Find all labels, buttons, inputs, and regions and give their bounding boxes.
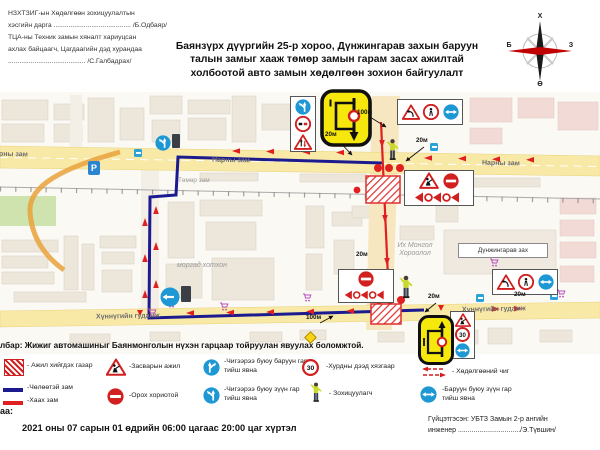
speed-limit-sign-icon: 30 <box>455 327 470 342</box>
mandatory-direction-sign-icon <box>443 104 459 120</box>
market-cart-icon <box>219 302 229 311</box>
distance-label: 20м <box>325 131 337 138</box>
mandatory-direction-sign-icon <box>155 135 171 151</box>
railway-label: Төмөр зам <box>178 177 210 184</box>
legend-label-speed-limit: -Хурдны дээд хязгаар <box>326 363 395 372</box>
traffic-officer-icon <box>310 381 322 407</box>
detour-chevron-icon <box>343 289 389 301</box>
no-entry-sign-icon <box>358 271 374 287</box>
work-area-swatch <box>4 359 24 376</box>
svg-text:30: 30 <box>307 365 315 372</box>
mandatory-direction-sign-icon <box>455 343 470 358</box>
street-label-narny-mid: Нарны зам <box>212 157 250 165</box>
no-pedestrian-sign-icon <box>423 104 439 120</box>
legend-label-right-or-left: -Баруун буюу зүүн гар тийш явна <box>442 386 526 404</box>
executor-line: Гүйцэтгэсэн: УБТЗ Замын 2-р ангийн <box>428 414 556 425</box>
distance-label: 20м <box>428 293 440 300</box>
approval-line: НЗХТЗИГ-ын Хөдөлгөөн зохицуулалтын <box>8 8 243 20</box>
traffic-scheme-page: НЗХТЗИГ-ын Хөдөлгөөн зохицуулалтын хэсги… <box>0 0 600 450</box>
compass-rose-icon: Х Ө З Б <box>504 10 576 86</box>
mandatory-right-or-left-icon <box>420 386 437 403</box>
free-road-swatch <box>3 388 23 392</box>
oncoming-priority-sign-icon <box>294 134 312 150</box>
no-entry-sign-icon <box>107 388 124 405</box>
no-overtaking-sign-icon <box>295 116 311 132</box>
compass-west-label: Б <box>506 42 511 49</box>
place-label-dunjingarav: Дүнжингарав зах <box>458 243 548 258</box>
approval-line: хэсгийн дарга ..........................… <box>8 20 243 32</box>
parking-icon: P <box>88 161 100 175</box>
svg-text:30: 30 <box>459 333 466 339</box>
mandatory-straight-right-icon <box>203 359 220 376</box>
market-cart-icon <box>147 308 157 317</box>
note-text: лбар: Жижиг автомашиныг Баянмонголын нүх… <box>0 341 364 350</box>
roadworks-plate-top <box>404 170 474 206</box>
period-label: аа: <box>0 406 13 416</box>
bus-stop-icon <box>430 143 438 151</box>
mandatory-direction-sign-icon <box>295 99 311 115</box>
detour-scheme-sign-icon <box>320 89 372 147</box>
sign-cluster-east <box>397 99 463 125</box>
distance-label: 20м <box>514 291 526 298</box>
mandatory-direction-sign-icon <box>160 287 180 307</box>
legend-label-controller: - Зохицуулагч <box>329 390 372 399</box>
roadworks-sign-icon <box>106 358 126 376</box>
market-cart-icon <box>489 258 499 267</box>
warning-curve-sign-icon <box>402 104 420 120</box>
executor-block: Гүйцэтгэсэн: УБТЗ Замын 2-р ангийн инжен… <box>428 414 556 436</box>
speed-limit-sign-icon: 30 <box>302 359 319 376</box>
no-entry-plate-bottom <box>338 269 394 303</box>
legend-label-straight-or-left: -Чигээрээ буюу зүүн гар тийш явна <box>224 386 316 404</box>
work-zone-hatch-top <box>366 176 400 203</box>
bus-stop-icon <box>134 149 142 157</box>
legend-label-free-road: -Чөлөөтэй зам <box>27 384 73 393</box>
period-text: 2021 оны 07 сарын 01 өдрийн 06:00 цагаас… <box>22 423 297 433</box>
market-cart-icon <box>302 293 312 302</box>
sign-cluster-west <box>290 96 316 152</box>
distance-label: 100м <box>306 314 321 321</box>
legend-label-no-entry: -Орох хориотой <box>129 392 178 401</box>
legend-label-repair: -Засварын ажил <box>129 363 180 372</box>
side-street-top <box>70 95 82 147</box>
detour-scheme-sign-icon <box>418 315 454 365</box>
info-board-icon <box>181 286 191 302</box>
legend-label-closed-road: -Хаах зам <box>27 397 58 406</box>
roadworks-sign-icon <box>455 313 471 327</box>
traffic-officer-icon <box>386 138 399 165</box>
compass-north-label: Х <box>538 13 543 20</box>
traffic-officer-icon <box>399 274 413 304</box>
compass-south-label: Ө <box>537 81 543 86</box>
mandatory-straight-left-icon <box>203 387 220 404</box>
place-label-morgad: моргад хотхон <box>176 262 228 270</box>
executor-line: инженер ................................… <box>428 425 556 436</box>
street-label-narny-right: Нарны зам <box>482 160 520 168</box>
distance-label: 20м <box>356 251 368 258</box>
detour-chevron-icon <box>413 191 465 204</box>
no-pedestrian-sign-icon <box>518 274 534 290</box>
distance-label: 20м <box>416 137 428 144</box>
closed-road-swatch <box>3 401 23 405</box>
place-label-ikh-mongol: Их Монгол Хороолол <box>388 242 442 258</box>
work-zone-hatch-bottom <box>371 304 401 324</box>
legend-label-direction: - Хөдөлгөөний чиг <box>452 368 509 377</box>
warning-curve-sign-icon <box>497 274 515 290</box>
info-board-icon <box>172 134 180 148</box>
distance-label: 100м <box>357 109 372 116</box>
page-title: Баянзүрх дүүргийн 25-р хороо, Дүнжингара… <box>172 40 482 80</box>
bus-stop-icon <box>476 294 484 302</box>
legend-label-work-area: - Ажил хийгдэх газар <box>27 362 92 371</box>
movement-direction-icon <box>421 366 447 378</box>
no-entry-sign-icon <box>443 173 459 189</box>
roadworks-sign-icon <box>419 172 439 189</box>
street-label-narny-left: Нарны зам <box>0 151 28 159</box>
mandatory-direction-sign-icon <box>538 274 554 290</box>
compass-east-label: З <box>569 42 574 49</box>
